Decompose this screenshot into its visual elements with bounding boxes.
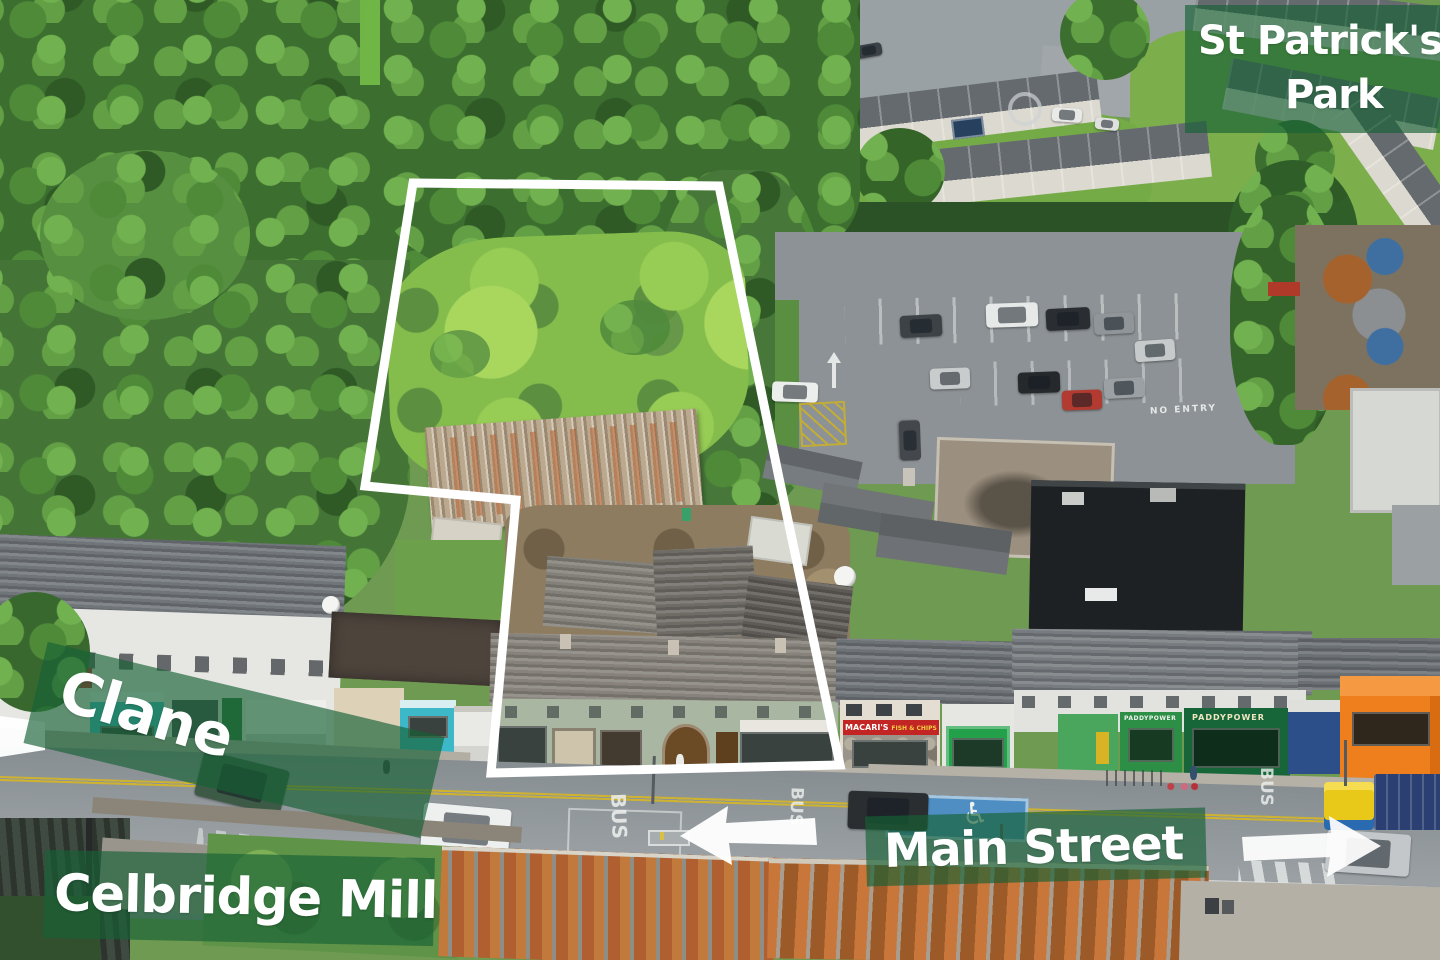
- aerial-photo: NO ENTRY MAC: [0, 0, 1440, 960]
- forest-bright-patch: [40, 150, 250, 320]
- subject-long-shop-sign: [740, 720, 834, 732]
- portaloo: [682, 508, 691, 521]
- parked-van-white: [986, 302, 1039, 328]
- pp-roofs: [1012, 629, 1313, 696]
- paddypower-fascia-2: PADDYPOWER: [1192, 714, 1265, 722]
- subject-chimney-1: [560, 634, 571, 649]
- black-roof-unit-2: [1150, 488, 1176, 502]
- bus-marking-1: BUS: [608, 793, 630, 840]
- subject-chimney-3: [775, 638, 786, 653]
- refuge-bollard: [660, 832, 664, 840]
- plot-rear-roofs-1: [543, 556, 668, 634]
- pedestrian-3: [1190, 766, 1197, 780]
- subject-chimney-2: [668, 640, 679, 655]
- bike-rack: [1106, 770, 1168, 786]
- rear-chimney: [903, 468, 915, 486]
- st-patricks-park-label-line1: St Patrick's: [1198, 21, 1440, 61]
- macaris-sign: MACARI'S FISH & CHIPS: [843, 720, 939, 735]
- lamp-post-3: [1344, 740, 1347, 786]
- orange-building-windows: [1352, 712, 1430, 746]
- white-building-roof: [1350, 388, 1440, 513]
- macaris-sub-text: FISH & CHIPS: [891, 725, 936, 732]
- subject-upper-windows: [505, 706, 825, 718]
- meadow-bush-2: [430, 330, 490, 378]
- main-street-band: Main Street: [865, 808, 1207, 887]
- parked-car-black-2: [1018, 371, 1061, 393]
- st-patricks-park-label-line2: Park: [1285, 75, 1383, 115]
- white-pickup: [772, 381, 819, 403]
- refuge-island: [648, 830, 690, 846]
- pp-yellow-door: [1096, 732, 1109, 764]
- parked-car-silver-1: [1134, 339, 1175, 363]
- mini-roundabout: [1008, 92, 1042, 126]
- parked-car-black-1: [1045, 307, 1090, 331]
- grey-annex-roof: [1392, 505, 1440, 585]
- celbridge-mill-label: Celbridge Mill: [54, 868, 438, 927]
- blue-shopfront: [1288, 700, 1342, 774]
- meadow-bush-1: [600, 300, 670, 355]
- parked-car-red: [1062, 389, 1103, 410]
- macaris-sign-text: MACARI'S: [845, 723, 889, 732]
- flower-planters: [1164, 782, 1198, 791]
- parked-van-dark: [899, 314, 942, 338]
- pp-upper-windows: [1022, 696, 1298, 708]
- solar-panel: [951, 116, 985, 140]
- pavement-bottom-right: [1179, 880, 1440, 960]
- red-container: [1268, 282, 1300, 296]
- parked-car-grey-2: [1104, 377, 1145, 399]
- silver-car: [1325, 829, 1412, 877]
- green-shop-window: [952, 738, 1004, 768]
- parked-car-grey-1: [1093, 312, 1134, 335]
- estate-van-white: [1052, 107, 1083, 123]
- macaris-roof: [835, 638, 1018, 705]
- parked-car-silver-2: [930, 367, 971, 389]
- barn-rust-streaks: [438, 422, 683, 519]
- pp-pub-windows: [1192, 728, 1280, 768]
- ground-arrow-stem: [832, 362, 836, 388]
- st-patricks-park-band: St Patrick's Park: [1185, 5, 1440, 133]
- parked-car-dark-3: [899, 420, 921, 461]
- bin-1: [1205, 898, 1219, 914]
- macaris-upper-windows: [846, 704, 930, 716]
- yellow-hatch-box: [799, 401, 847, 447]
- ground-arrow-head: [827, 352, 841, 363]
- estate-car-white: [1094, 117, 1119, 131]
- rust-roof-centre: [438, 846, 777, 960]
- pp-shop-light-green: [1058, 714, 1118, 776]
- brown-roof-block: [328, 612, 503, 687]
- black-roof-skylight: [1085, 588, 1117, 601]
- white-shed-roof: [745, 516, 812, 566]
- truck-cab-yellow: [1324, 782, 1374, 830]
- bus-marking-2: BUS: [786, 787, 804, 827]
- bin-2: [1222, 900, 1234, 914]
- pp-shop-green-window: [1128, 728, 1174, 762]
- pedestrian-1: [676, 754, 684, 771]
- bus-marking-3: BUS: [1257, 767, 1274, 806]
- paddypower-fascia-1: PADDYPOWER: [1124, 716, 1176, 722]
- main-street-label: Main Street: [883, 820, 1183, 875]
- celbridge-mill-band: Celbridge Mill: [43, 850, 435, 946]
- scrapyard: [1295, 225, 1440, 410]
- black-roof-unit-1: [1062, 492, 1084, 505]
- truck-trailer-blue: [1374, 774, 1440, 830]
